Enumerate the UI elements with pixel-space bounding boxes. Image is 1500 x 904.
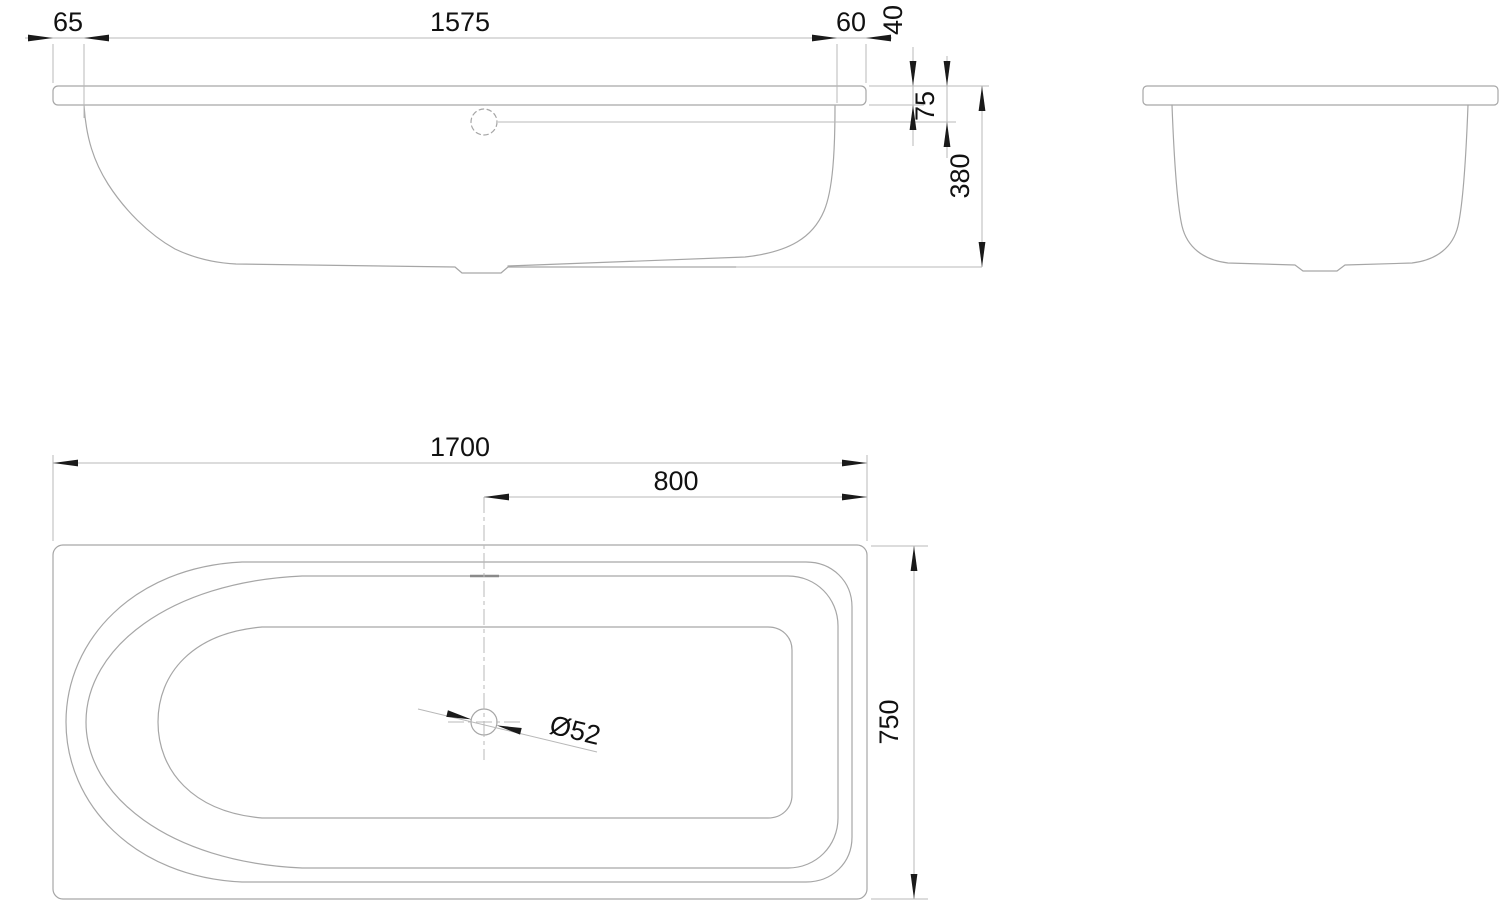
drain-diameter-label: Ø52 <box>547 710 604 751</box>
end-rim-outline <box>1143 86 1498 105</box>
dim-380-label: 380 <box>945 153 975 198</box>
dim-750-label: 750 <box>874 699 904 744</box>
overflow-circle <box>471 109 497 135</box>
dim-800-label: 800 <box>653 466 698 496</box>
dim-arrow <box>842 460 867 467</box>
dim-arrow <box>910 61 917 86</box>
dim-65-label: 65 <box>53 7 83 37</box>
end-body-outline <box>1172 105 1468 271</box>
side-inner-profile <box>508 106 835 266</box>
dim-arrow <box>28 35 53 42</box>
dim-arrow <box>979 242 986 267</box>
side-body-outline <box>84 105 736 273</box>
leader-arrow <box>497 725 522 734</box>
dim-40-label: 40 <box>878 5 908 35</box>
dim-arrow <box>911 874 918 899</box>
dim-1575-label: 1575 <box>430 7 490 37</box>
dim-arrow <box>979 86 986 111</box>
dim-arrow <box>944 122 951 147</box>
dim-arrow <box>53 460 78 467</box>
plan-view: Ø52 1700 800 750 <box>53 432 928 899</box>
dim-arrow <box>944 61 951 86</box>
end-elevation-view <box>1143 86 1498 271</box>
side-elevation-view: 65 1575 60 40 75 380 <box>25 5 989 273</box>
side-rim-outline <box>53 86 866 105</box>
dim-arrow <box>812 35 837 42</box>
dim-arrow <box>842 494 867 501</box>
dim-60-label: 60 <box>836 7 866 37</box>
dim-arrow <box>484 494 509 501</box>
bathtub-technical-drawing: 65 1575 60 40 75 380 <box>0 0 1500 904</box>
dim-1700-label: 1700 <box>430 432 490 462</box>
dim-75-label: 75 <box>910 91 940 121</box>
leader-arrow <box>446 710 471 719</box>
dim-arrow <box>911 546 918 571</box>
dim-arrow <box>84 35 109 42</box>
